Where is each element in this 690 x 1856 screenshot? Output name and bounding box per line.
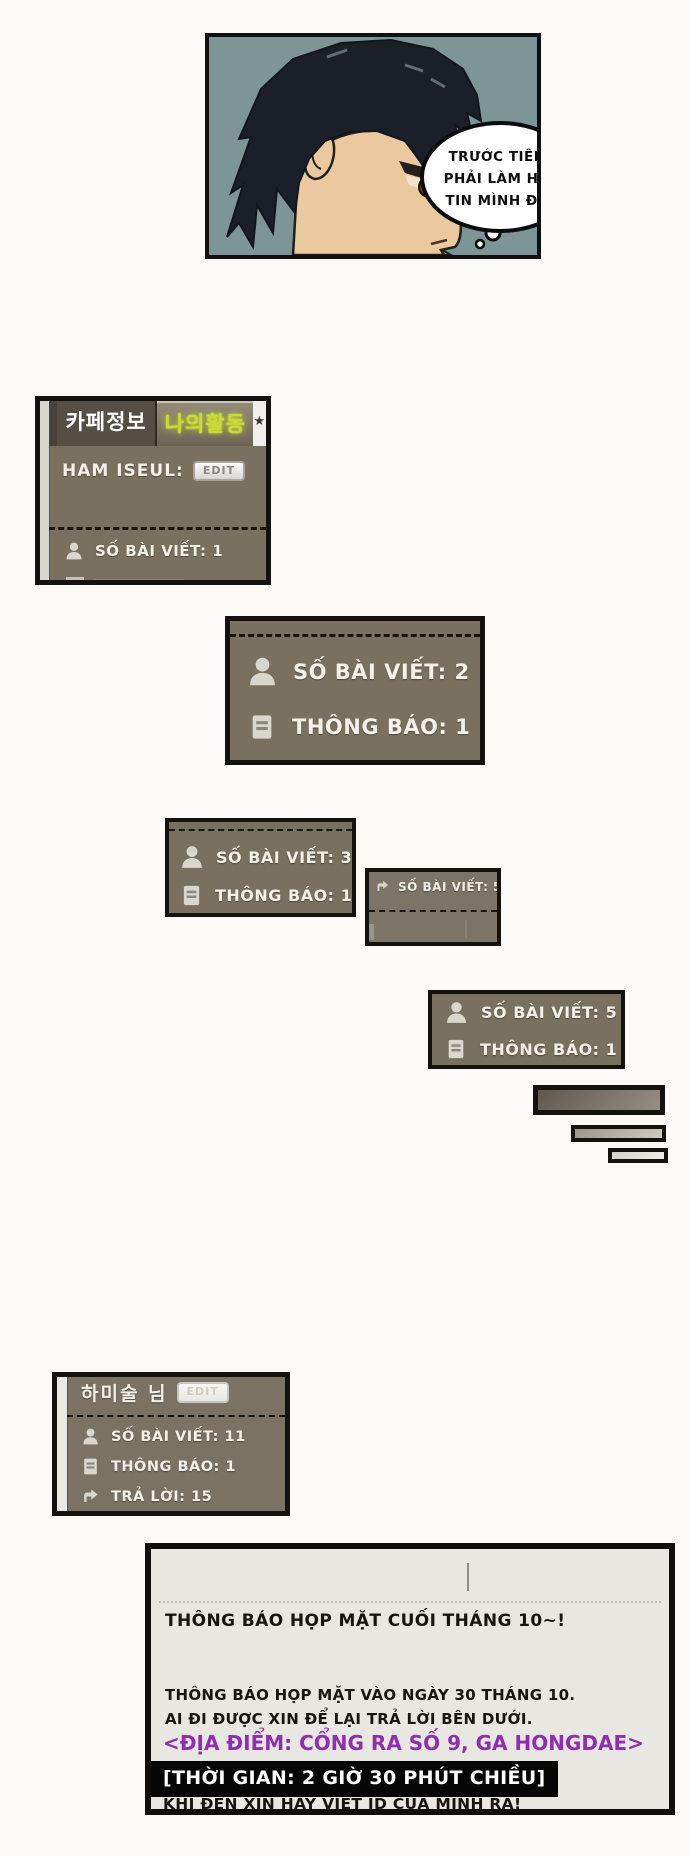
- stat-posts: SỐ BÀI VIẾT: 5: [481, 1003, 617, 1022]
- clipped-row-sliver: [66, 577, 84, 585]
- announcement-location: <ĐỊA ĐIỂM: CỔNG RA SỐ 9, GA HONGDAE>: [163, 1731, 644, 1755]
- bubble-text-line: TIN MÌNH ĐÃ: [445, 192, 537, 209]
- clipped-row-sliver: [94, 579, 184, 584]
- notice-icon: [445, 1038, 467, 1060]
- person-icon: [81, 1427, 100, 1446]
- person-icon: [444, 1000, 469, 1025]
- notice-icon: [248, 713, 276, 741]
- reply-arrow-icon: [81, 1487, 100, 1506]
- cafe-profile-box-6: 하미술 님 EDIT SỐ BÀI VIẾT: 11 THÔNG BÁO: 1 …: [52, 1372, 290, 1516]
- tab-my-activity[interactable]: 나의활동: [157, 401, 253, 446]
- announcement-footer: KHI ĐẾN XIN HÃY VIẾT ID CỦA MÌNH RA!: [163, 1795, 521, 1813]
- announcement-body-line: AI ĐI ĐƯỢC XIN ĐỂ LẠI TRẢ LỜI BÊN DƯỚI.: [165, 1707, 575, 1731]
- announcement-time: [THỜI GIAN: 2 GIỜ 30 PHÚT CHIỀU]: [151, 1761, 558, 1797]
- dashed-divider: [230, 634, 480, 637]
- person-icon: [246, 655, 279, 688]
- cafe-stats-box-4: SỐ BÀI VIẾT: 5: [365, 868, 501, 946]
- stat-notices: THÔNG BÁO: 1: [480, 1040, 617, 1059]
- edit-button[interactable]: EDIT: [177, 1382, 229, 1402]
- content-bar: [608, 1148, 668, 1163]
- cafe-stats-box-5: SỐ BÀI VIẾT: 5 THÔNG BÁO: 1: [428, 990, 625, 1069]
- notice-icon: [180, 884, 203, 907]
- person-icon: [179, 844, 205, 870]
- stat-posts: SỐ BÀI VIẾT: 5: [398, 880, 501, 894]
- thought-bubble-dot: [476, 240, 484, 248]
- page-edge-strip: [57, 1377, 68, 1511]
- dashed-divider: [369, 910, 497, 912]
- notice-icon: [81, 1457, 100, 1476]
- dashed-divider: [169, 829, 352, 831]
- stat-notices: THÔNG BÁO: 1: [292, 715, 470, 739]
- character-illustration: TRƯỚC TIÊN PHẢI LÀM HỌ TIN MÌNH ĐÃ: [209, 37, 537, 255]
- comic-panel: TRƯỚC TIÊN PHẢI LÀM HỌ TIN MÌNH ĐÃ: [205, 33, 541, 259]
- star-tab-icon[interactable]: ★: [253, 401, 266, 446]
- cafe-stats-box-2: SỐ BÀI VIẾT: 2 THÔNG BÁO: 1: [225, 616, 485, 765]
- username-label: 하미술 님: [81, 1379, 168, 1406]
- dashed-divider: [49, 527, 266, 530]
- username-label: HAM ISEUL:: [62, 461, 184, 481]
- cafe-stats-box-3: SỐ BÀI VIẾT: 3 THÔNG BÁO: 1: [165, 818, 356, 917]
- edit-button[interactable]: EDIT: [193, 461, 245, 481]
- cafe-profile-box-1: 카페정보 나의활동 ★ HAM ISEUL: EDIT SỐ BÀI VIẾT:…: [35, 396, 271, 585]
- stat-posts: SỐ BÀI VIẾT: 3: [216, 848, 352, 867]
- tab-cafe-info[interactable]: 카페정보: [57, 401, 157, 446]
- content-bar: [571, 1125, 666, 1142]
- dashed-divider: [67, 1415, 285, 1417]
- tab-row: 카페정보 나의활동 ★: [49, 401, 266, 446]
- content-bar: [533, 1085, 665, 1115]
- announcement-panel: THÔNG BÁO HỌP MẶT CUỐI THÁNG 10~! THÔNG …: [145, 1543, 675, 1815]
- stat-posts: SỐ BÀI VIẾT: 2: [293, 660, 470, 684]
- announcement-body: THÔNG BÁO HỌP MẶT VÀO NGÀY 30 THÁNG 10. …: [165, 1683, 575, 1732]
- person-icon: [64, 541, 84, 561]
- reply-arrow-icon: [375, 879, 390, 894]
- stat-replies: TRẢ LỜI: 15: [111, 1489, 212, 1505]
- stat-posts: SỐ BÀI VIẾT: 11: [111, 1429, 246, 1445]
- cursor-mark: [465, 920, 467, 938]
- clipped-row-sliver: [369, 924, 374, 940]
- announcement-body-line: THÔNG BÁO HỌP MẶT VÀO NGÀY 30 THÁNG 10.: [165, 1683, 575, 1707]
- announcement-title: THÔNG BÁO HỌP MẶT CUỐI THÁNG 10~!: [165, 1611, 565, 1631]
- dotted-divider: [159, 1601, 661, 1603]
- bubble-text-line: TRƯỚC TIÊN: [448, 147, 537, 165]
- stat-notices: THÔNG BÁO: 1: [215, 886, 352, 905]
- text-cursor: [467, 1563, 469, 1591]
- stat-notices: THÔNG BÁO: 1: [111, 1459, 236, 1475]
- stat-posts: SỐ BÀI VIẾT: 1: [95, 542, 223, 560]
- bubble-text-line: PHẢI LÀM HỌ: [444, 168, 537, 187]
